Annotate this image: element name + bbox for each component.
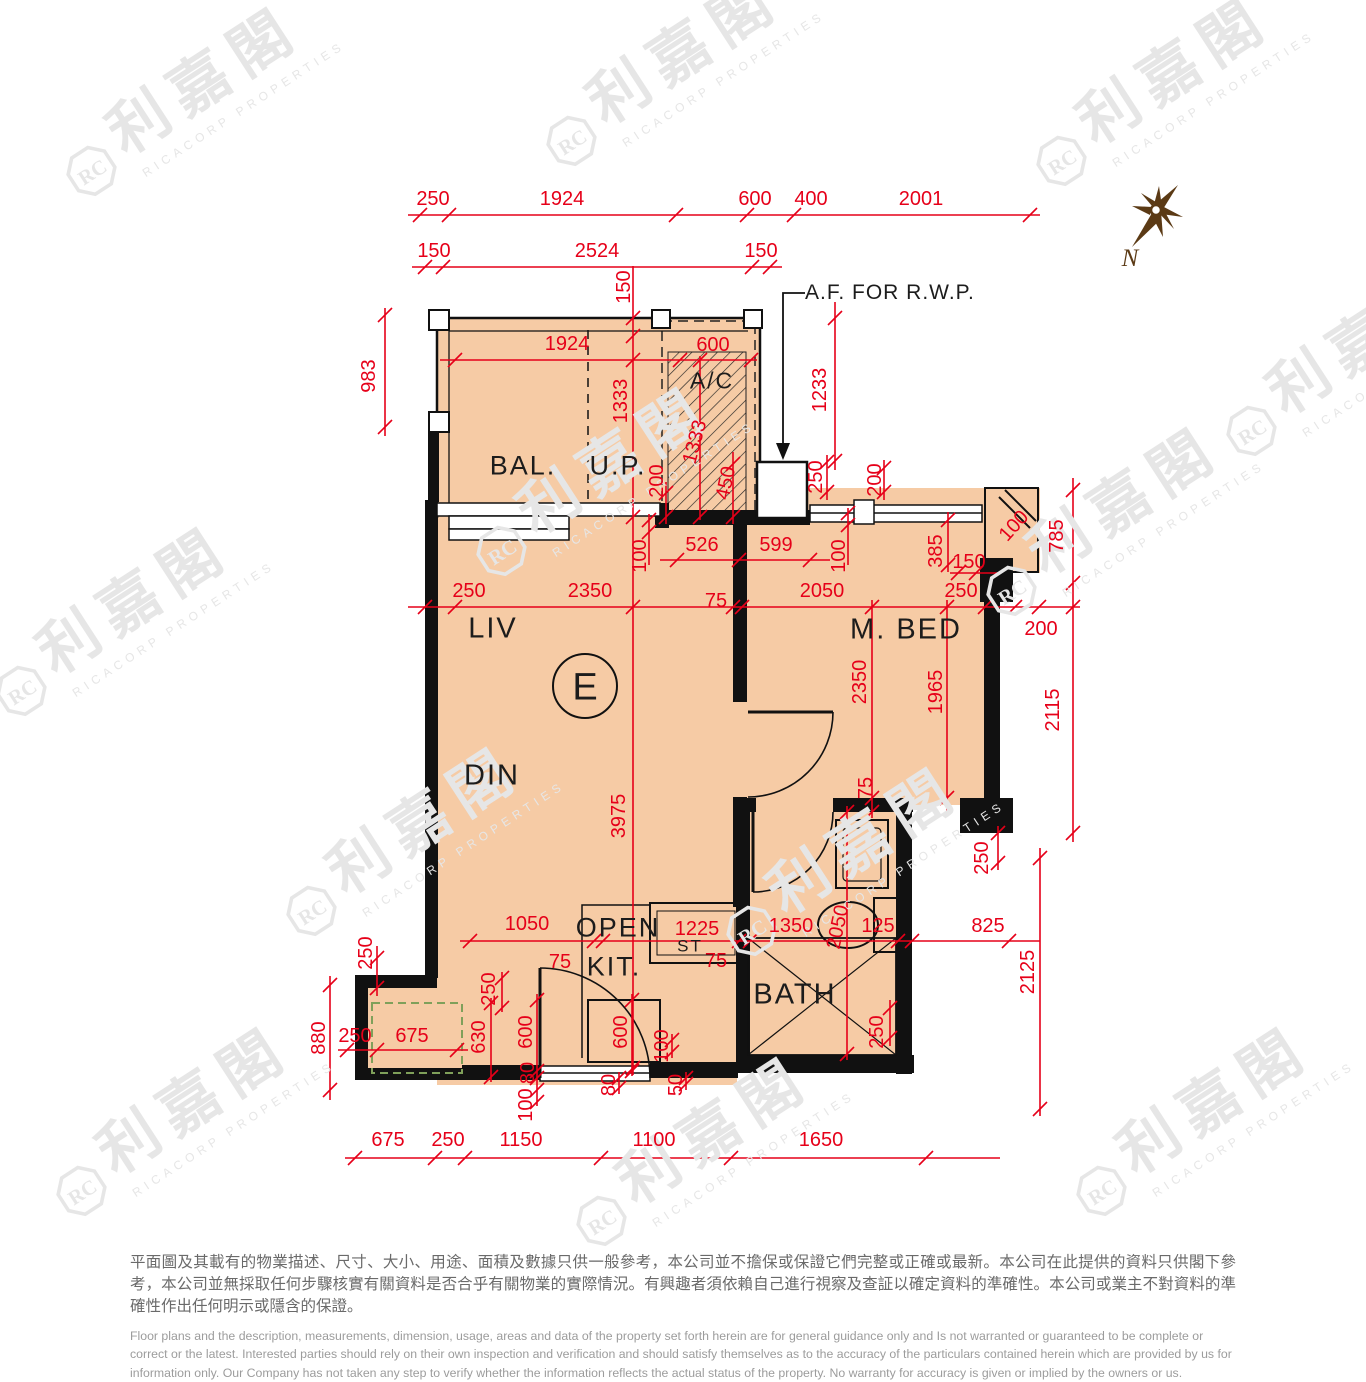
floor-plan xyxy=(0,0,1366,1366)
disclaimer-chinese: 平面圖及其載有的物業描述、尺寸、大小、用途、面積及數據只供一般參考，本公司並不擔… xyxy=(130,1252,1236,1318)
rwp-box xyxy=(757,293,807,518)
disclaimer-english: Floor plans and the description, measure… xyxy=(130,1327,1236,1382)
north-compass-icon xyxy=(1132,185,1183,247)
disclaimer: 平面圖及其載有的物業描述、尺寸、大小、用途、面積及數據只供一般參考，本公司並不擔… xyxy=(130,1252,1236,1382)
